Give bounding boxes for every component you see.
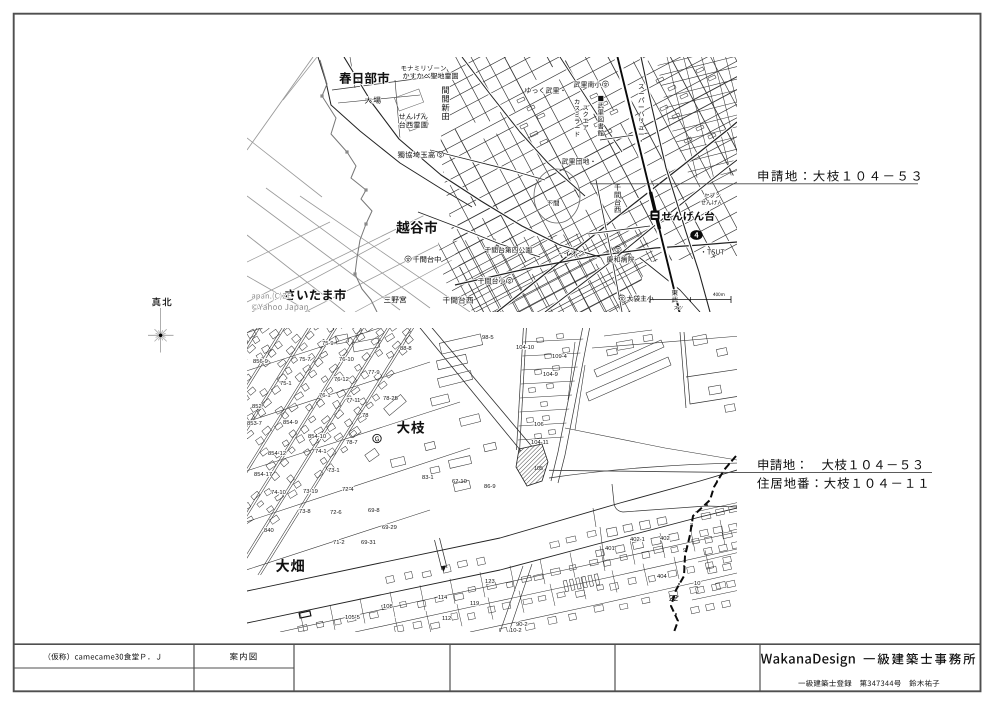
svg-text:75-9: 75-9	[322, 341, 334, 347]
svg-text:854-10: 854-10	[308, 434, 326, 440]
svg-text:108: 108	[383, 604, 393, 610]
svg-text:77-11: 77-11	[346, 398, 360, 404]
svg-text:77-9: 77-9	[368, 370, 380, 376]
svg-text:75-7: 75-7	[299, 357, 311, 363]
svg-text:76-12: 76-12	[334, 377, 349, 383]
svg-text:404: 404	[657, 574, 667, 580]
svg-text:88-8: 88-8	[400, 346, 412, 352]
svg-text:71-2: 71-2	[333, 540, 345, 546]
svg-text:69-29: 69-29	[382, 525, 397, 531]
svg-text:76-10: 76-10	[339, 357, 354, 363]
svg-text:98-5: 98-5	[482, 335, 494, 341]
svg-text:402: 402	[660, 536, 670, 542]
svg-text:76-1: 76-1	[319, 393, 331, 399]
svg-text:854-9: 854-9	[283, 420, 298, 426]
svg-text:83-1: 83-1	[422, 475, 434, 481]
svg-text:105-5: 105-5	[345, 615, 360, 621]
svg-text:62-10: 62-10	[452, 479, 467, 485]
svg-text:402-1: 402-1	[630, 537, 645, 543]
svg-text:74-10: 74-10	[271, 490, 286, 496]
svg-text:123: 123	[485, 579, 495, 585]
svg-text:840: 840	[264, 528, 274, 534]
svg-text:104-9: 104-9	[543, 372, 558, 378]
svg-text:106: 106	[534, 422, 544, 428]
svg-text:73-8: 73-8	[299, 509, 311, 515]
svg-text:86-9: 86-9	[484, 484, 496, 490]
svg-text:104-10: 104-10	[516, 345, 534, 351]
svg-text:854-12: 854-12	[268, 451, 286, 457]
svg-text:78-25: 78-25	[383, 396, 398, 402]
svg-text:119: 119	[470, 601, 479, 607]
svg-text:109-4: 109-4	[552, 354, 568, 360]
svg-text:10: 10	[694, 581, 700, 587]
svg-text:112: 112	[442, 616, 451, 622]
svg-text:69-31: 69-31	[361, 540, 376, 546]
svg-text:72-6: 72-6	[330, 510, 342, 516]
svg-text:853-7: 853-7	[247, 421, 262, 427]
svg-text:856-9: 856-9	[253, 359, 268, 365]
svg-text:401: 401	[605, 546, 615, 552]
svg-text:75-1: 75-1	[280, 381, 292, 387]
svg-text:72-4: 72-4	[342, 487, 354, 493]
svg-text:78: 78	[362, 413, 368, 419]
svg-text:74-1: 74-1	[315, 449, 327, 455]
svg-text:78-7: 78-7	[346, 440, 358, 446]
svg-text:73-1: 73-1	[328, 468, 340, 474]
svg-text:105: 105	[534, 466, 543, 472]
svg-text:73-19: 73-19	[303, 489, 318, 495]
svg-text:114: 114	[438, 595, 448, 601]
svg-text:69-8: 69-8	[368, 508, 380, 514]
svg-text:852: 852	[252, 404, 262, 410]
svg-text:854-17: 854-17	[254, 472, 272, 478]
